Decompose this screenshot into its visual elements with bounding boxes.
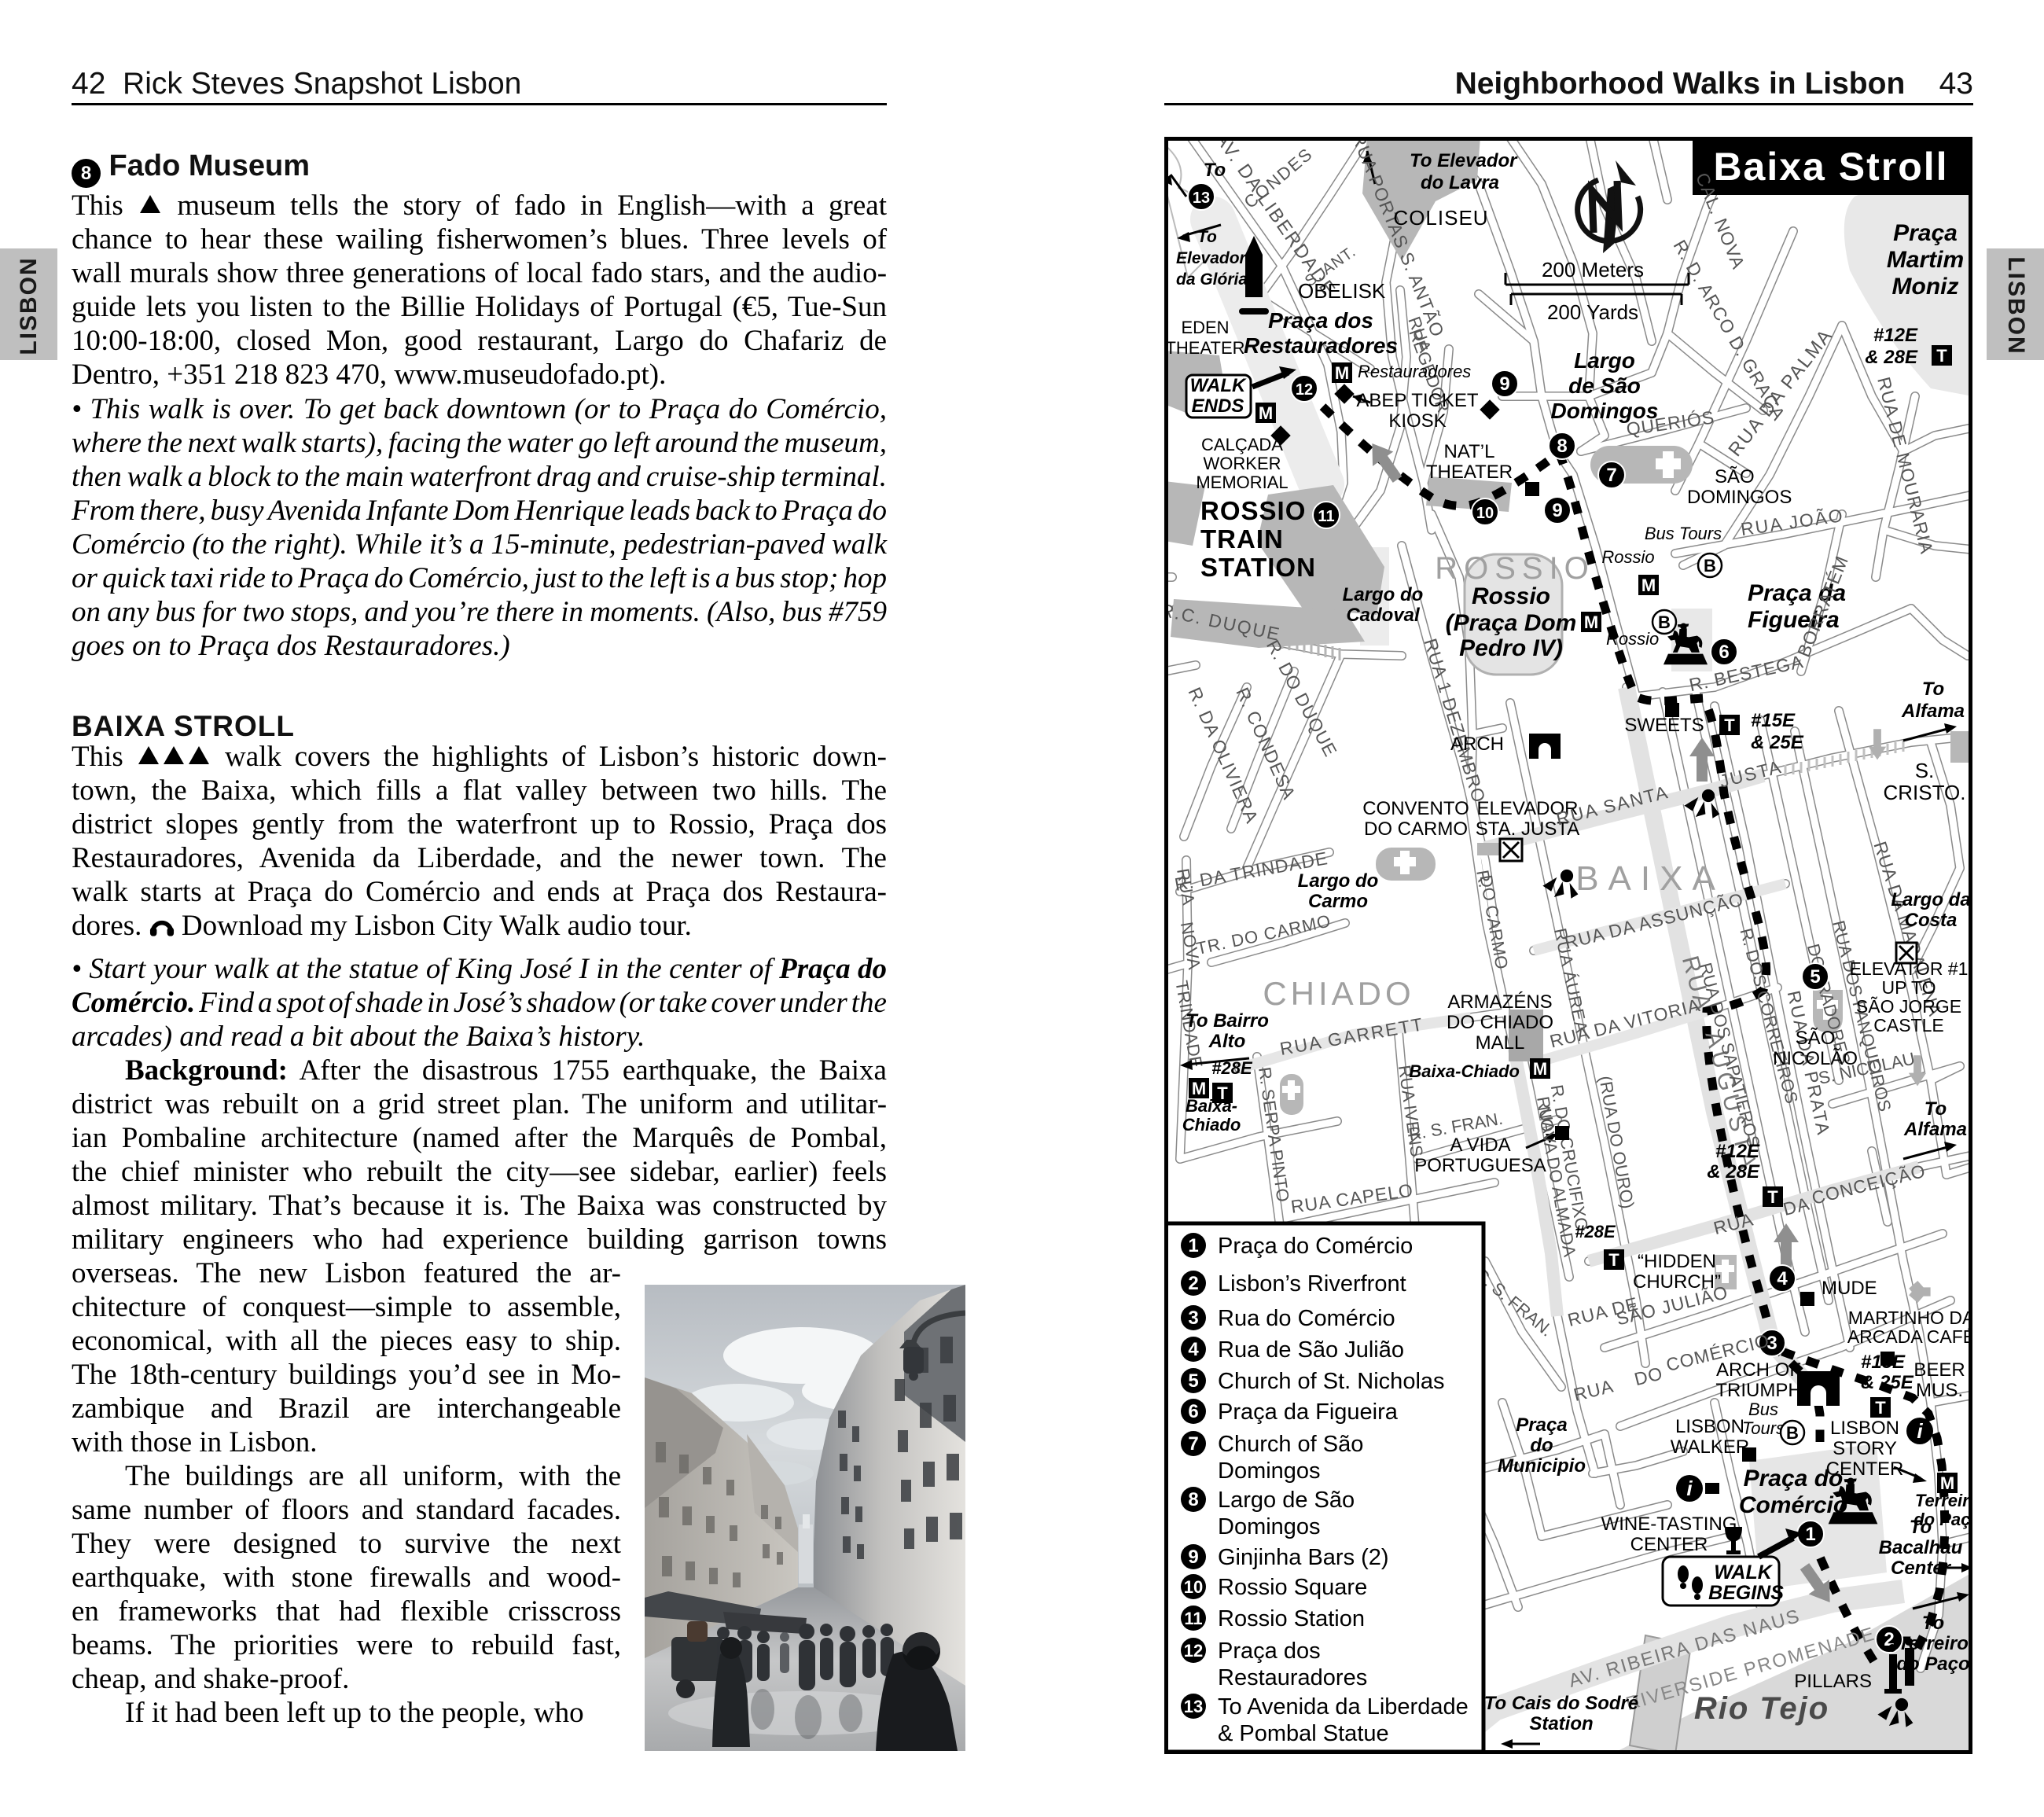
svg-text:8: 8 bbox=[1188, 1489, 1198, 1510]
svg-text:To Cais do Sodré: To Cais do Sodré bbox=[1484, 1693, 1638, 1714]
svg-text:6: 6 bbox=[1188, 1401, 1198, 1422]
svg-text:ROSSIO: ROSSIO bbox=[1435, 551, 1595, 586]
svg-text:T: T bbox=[1608, 1250, 1619, 1270]
svg-text:10: 10 bbox=[1184, 1577, 1203, 1597]
svg-text:6: 6 bbox=[1719, 642, 1729, 663]
svg-text:& 25E: & 25E bbox=[1751, 732, 1804, 753]
svg-text:WALK: WALK bbox=[1714, 1561, 1774, 1583]
svg-text:ARCH: ARCH bbox=[1450, 734, 1504, 755]
svg-text:PILLARS: PILLARS bbox=[1794, 1671, 1872, 1692]
svg-text:LISBON: LISBON bbox=[1830, 1418, 1899, 1439]
svg-text:COLISEU: COLISEU bbox=[1393, 206, 1488, 230]
svg-text:CHIADO: CHIADO bbox=[1263, 975, 1414, 1012]
svg-text:12: 12 bbox=[1184, 1641, 1203, 1661]
svg-text:T: T bbox=[1767, 1187, 1778, 1207]
svg-text:Rossio: Rossio bbox=[1606, 629, 1659, 649]
svg-text:#28E: #28E bbox=[1575, 1222, 1616, 1241]
svg-text:WALK: WALK bbox=[1190, 375, 1247, 396]
svg-text:#15E: #15E bbox=[1861, 1352, 1906, 1373]
svg-text:Praça do Comércio: Praça do Comércio bbox=[1218, 1234, 1413, 1259]
svg-text:do: do bbox=[1530, 1435, 1553, 1456]
svg-text:Largo: Largo bbox=[1574, 348, 1635, 373]
svg-text:To: To bbox=[1922, 679, 1944, 700]
svg-text:TRIUMPH: TRIUMPH bbox=[1715, 1380, 1801, 1401]
svg-text:MUS.: MUS. bbox=[1916, 1380, 1963, 1401]
svg-text:To Bairro: To Bairro bbox=[1186, 1010, 1269, 1032]
svg-text:7: 7 bbox=[1606, 465, 1616, 486]
svg-text:WALKER: WALKER bbox=[1671, 1436, 1749, 1458]
svg-text:Baixa Stroll: Baixa Stroll bbox=[1713, 145, 1948, 189]
svg-text:Rio Tejo: Rio Tejo bbox=[1694, 1691, 1829, 1726]
svg-text:M: M bbox=[1533, 1059, 1547, 1079]
svg-text:Praça da Figueira: Praça da Figueira bbox=[1218, 1400, 1399, 1425]
svg-text:Rossio Square: Rossio Square bbox=[1218, 1575, 1367, 1600]
svg-text:(Praça Dom: (Praça Dom bbox=[1446, 610, 1577, 636]
svg-text:Station: Station bbox=[1529, 1713, 1593, 1734]
svg-text:ENDS: ENDS bbox=[1192, 395, 1244, 417]
svg-text:WORKER: WORKER bbox=[1204, 454, 1281, 473]
svg-text:To: To bbox=[1925, 1098, 1947, 1120]
svg-text:12: 12 bbox=[1296, 381, 1313, 399]
svg-text:TRAIN: TRAIN bbox=[1200, 524, 1284, 554]
svg-text:11: 11 bbox=[1184, 1609, 1202, 1628]
svg-text:Praça: Praça bbox=[1516, 1414, 1567, 1436]
svg-text:M: M bbox=[1584, 612, 1598, 632]
svg-text:CASTLE: CASTLE bbox=[1873, 1015, 1943, 1035]
svg-text:4: 4 bbox=[1188, 1339, 1199, 1360]
svg-text:Bus: Bus bbox=[1748, 1400, 1778, 1419]
svg-text:M: M bbox=[1259, 403, 1273, 423]
svg-text:& 28E: & 28E bbox=[1865, 347, 1918, 368]
svg-text:To Avenida da Liberdade: To Avenida da Liberdade bbox=[1218, 1694, 1469, 1720]
svg-text:Tours: Tours bbox=[1742, 1418, 1785, 1438]
svg-text:Alfama: Alfama bbox=[1903, 1119, 1967, 1140]
svg-text:Church of St. Nicholas: Church of St. Nicholas bbox=[1218, 1369, 1445, 1394]
svg-text:T: T bbox=[1724, 715, 1735, 735]
svg-text:Ginjinha Bars (2): Ginjinha Bars (2) bbox=[1218, 1545, 1389, 1570]
svg-text:To: To bbox=[1204, 160, 1226, 181]
svg-text:ELEVATOR #1: ELEVATOR #1 bbox=[1850, 958, 1969, 979]
svg-text:Terreiro: Terreiro bbox=[1915, 1491, 1972, 1510]
svg-text:WINE-TASTING: WINE-TASTING bbox=[1601, 1514, 1737, 1535]
svg-text:ARCH OF: ARCH OF bbox=[1716, 1359, 1801, 1381]
svg-text:Restauradores: Restauradores bbox=[1358, 362, 1471, 381]
svg-text:ABEP TICKET: ABEP TICKET bbox=[1356, 390, 1479, 411]
svg-text:Praça dos: Praça dos bbox=[1218, 1639, 1321, 1664]
svg-text:Church of São: Church of São bbox=[1218, 1432, 1363, 1457]
svg-text:Alto: Alto bbox=[1208, 1031, 1246, 1052]
svg-text:To: To bbox=[1922, 1613, 1944, 1634]
svg-text:T: T bbox=[1936, 346, 1947, 366]
svg-text:B: B bbox=[1786, 1423, 1799, 1443]
svg-text:S.: S. bbox=[1915, 759, 1935, 782]
svg-text:& 25E: & 25E bbox=[1861, 1372, 1914, 1393]
svg-text:THEATER: THEATER bbox=[1165, 338, 1244, 358]
svg-text:i: i bbox=[1917, 1419, 1923, 1443]
svg-text:do Lavra: do Lavra bbox=[1421, 172, 1499, 193]
svg-text:EDEN: EDEN bbox=[1181, 318, 1229, 337]
svg-text:#12E: #12E bbox=[1873, 325, 1918, 346]
svg-text:Domingos: Domingos bbox=[1218, 1458, 1321, 1484]
svg-text:11: 11 bbox=[1318, 508, 1334, 525]
svg-text:ARCADA CAFÉ: ARCADA CAFÉ bbox=[1847, 1326, 1972, 1347]
svg-text:CONVENTO: CONVENTO bbox=[1362, 798, 1469, 819]
svg-text:M: M bbox=[1641, 576, 1656, 595]
svg-text:Bacalhau: Bacalhau bbox=[1879, 1537, 1963, 1558]
svg-text:Bus Tours: Bus Tours bbox=[1645, 524, 1722, 543]
svg-text:CALÇADA: CALÇADA bbox=[1201, 435, 1283, 454]
svg-text:SÃO: SÃO bbox=[1796, 1028, 1836, 1049]
svg-text:3: 3 bbox=[1188, 1308, 1198, 1329]
svg-text:LISBON: LISBON bbox=[1675, 1416, 1744, 1437]
svg-text:Baixa-: Baixa- bbox=[1186, 1096, 1237, 1116]
svg-text:OBELISK: OBELISK bbox=[1298, 279, 1386, 303]
svg-text:Praça: Praça bbox=[1893, 220, 1958, 246]
svg-text:CRISTO.: CRISTO. bbox=[1884, 781, 1966, 804]
svg-text:#12E: #12E bbox=[1715, 1141, 1760, 1162]
svg-text:Rua de São Julião: Rua de São Julião bbox=[1218, 1337, 1404, 1363]
svg-text:Restauradores: Restauradores bbox=[1218, 1665, 1367, 1690]
svg-text:i: i bbox=[1686, 1477, 1693, 1500]
svg-text:7: 7 bbox=[1188, 1433, 1198, 1455]
svg-text:Chiado: Chiado bbox=[1182, 1115, 1241, 1135]
svg-text:ROSSIO: ROSSIO bbox=[1200, 496, 1306, 525]
svg-text:Martim: Martim bbox=[1887, 247, 1964, 273]
svg-text:Center: Center bbox=[1891, 1558, 1952, 1579]
svg-text:4: 4 bbox=[1777, 1268, 1788, 1289]
svg-text:T: T bbox=[1875, 1398, 1886, 1418]
svg-text:ARMAZÉNS: ARMAZÉNS bbox=[1447, 991, 1552, 1013]
svg-text:Lisbon’s Riverfront: Lisbon’s Riverfront bbox=[1218, 1271, 1406, 1297]
svg-text:8: 8 bbox=[1557, 436, 1567, 457]
svg-text:Largo de São: Largo de São bbox=[1218, 1488, 1355, 1513]
svg-text:NAT’L: NAT’L bbox=[1444, 441, 1495, 462]
svg-text:Pedro IV): Pedro IV) bbox=[1459, 635, 1563, 661]
svg-text:Domingos: Domingos bbox=[1218, 1514, 1321, 1539]
svg-text:B: B bbox=[1704, 556, 1716, 576]
svg-text:10: 10 bbox=[1476, 505, 1494, 522]
svg-text:MALL: MALL bbox=[1476, 1032, 1525, 1054]
svg-text:Moniz: Moniz bbox=[1892, 274, 1959, 300]
svg-text:Largo da: Largo da bbox=[1891, 889, 1970, 910]
svg-text:9: 9 bbox=[1499, 373, 1509, 395]
svg-text:Praça dos: Praça dos bbox=[1268, 308, 1373, 333]
svg-text:9: 9 bbox=[1552, 500, 1562, 521]
svg-text:& 28E: & 28E bbox=[1707, 1161, 1760, 1183]
svg-text:Restauradores: Restauradores bbox=[1244, 333, 1398, 358]
svg-text:STORY: STORY bbox=[1833, 1438, 1897, 1459]
svg-text:#28E: #28E bbox=[1211, 1058, 1253, 1078]
svg-text:5: 5 bbox=[1188, 1370, 1198, 1392]
svg-text:PORTUGUESA: PORTUGUESA bbox=[1414, 1155, 1546, 1176]
svg-text:Rossio: Rossio bbox=[1601, 547, 1654, 567]
svg-text:Elevador: Elevador bbox=[1176, 249, 1248, 267]
svg-text:9: 9 bbox=[1188, 1547, 1198, 1568]
svg-text:MEMORIAL: MEMORIAL bbox=[1196, 473, 1288, 492]
svg-text:Largo do: Largo do bbox=[1298, 870, 1379, 892]
svg-text:1: 1 bbox=[1805, 1524, 1815, 1545]
svg-text:To: To bbox=[1910, 1517, 1932, 1538]
svg-text:SWEETS: SWEETS bbox=[1624, 715, 1704, 736]
svg-text:SÃO JORGE: SÃO JORGE bbox=[1856, 996, 1961, 1017]
svg-text:A VIDA: A VIDA bbox=[1450, 1135, 1510, 1156]
svg-text:200 Meters: 200 Meters bbox=[1542, 258, 1644, 281]
svg-text:DO CARMO: DO CARMO bbox=[1364, 818, 1468, 840]
svg-text:Baixa-Chiado: Baixa-Chiado bbox=[1409, 1061, 1520, 1081]
svg-text:2: 2 bbox=[1188, 1273, 1198, 1294]
svg-text:1: 1 bbox=[1188, 1235, 1198, 1256]
svg-text:13: 13 bbox=[1184, 1697, 1203, 1716]
svg-text:200 Yards: 200 Yards bbox=[1547, 300, 1638, 324]
svg-text:Carmo: Carmo bbox=[1308, 891, 1368, 912]
svg-text:STATION: STATION bbox=[1200, 553, 1316, 582]
svg-text:DOMINGOS: DOMINGOS bbox=[1687, 487, 1792, 508]
svg-text:#15E: #15E bbox=[1751, 710, 1796, 731]
svg-text:13: 13 bbox=[1193, 189, 1210, 207]
svg-text:“HIDDEN: “HIDDEN bbox=[1638, 1251, 1716, 1272]
svg-text:Rossio Station: Rossio Station bbox=[1218, 1606, 1365, 1631]
svg-text:& Pombal Statue: & Pombal Statue bbox=[1218, 1721, 1389, 1746]
svg-text:Municipio: Municipio bbox=[1498, 1455, 1586, 1477]
svg-text:THEATER: THEATER bbox=[1426, 462, 1513, 483]
svg-text:B: B bbox=[1658, 612, 1671, 632]
svg-text:5: 5 bbox=[1810, 966, 1820, 988]
svg-text:Costa: Costa bbox=[1905, 910, 1958, 931]
svg-text:KIOSK: KIOSK bbox=[1388, 410, 1446, 432]
svg-text:Rua do Comércio: Rua do Comércio bbox=[1218, 1306, 1395, 1331]
svg-text:da Glória: da Glória bbox=[1176, 270, 1248, 289]
svg-text:M: M bbox=[1335, 363, 1349, 383]
svg-text:UP TO: UP TO bbox=[1881, 977, 1936, 998]
svg-text:To Elevador: To Elevador bbox=[1410, 150, 1518, 171]
svg-text:BAIXA: BAIXA bbox=[1575, 859, 1725, 898]
svg-text:CENTER: CENTER bbox=[1630, 1534, 1708, 1555]
svg-text:Rossio: Rossio bbox=[1472, 583, 1550, 609]
svg-text:BEER: BEER bbox=[1913, 1359, 1965, 1381]
svg-text:Largo do: Largo do bbox=[1343, 584, 1424, 605]
svg-text:Alfama: Alfama bbox=[1901, 701, 1965, 722]
svg-text:SÃO: SÃO bbox=[1715, 466, 1755, 487]
svg-text:de São: de São bbox=[1568, 373, 1641, 398]
svg-text:BEGINS: BEGINS bbox=[1708, 1582, 1784, 1604]
svg-text:Cadoval: Cadoval bbox=[1346, 605, 1421, 626]
svg-text:MUDE: MUDE bbox=[1822, 1278, 1877, 1299]
svg-text:MARTINHO DA: MARTINHO DA bbox=[1848, 1308, 1972, 1328]
svg-text:DO CHIADO: DO CHIADO bbox=[1447, 1012, 1553, 1033]
svg-text:Praça do: Praça do bbox=[1744, 1466, 1844, 1491]
svg-text:Comércio: Comércio bbox=[1739, 1492, 1847, 1518]
